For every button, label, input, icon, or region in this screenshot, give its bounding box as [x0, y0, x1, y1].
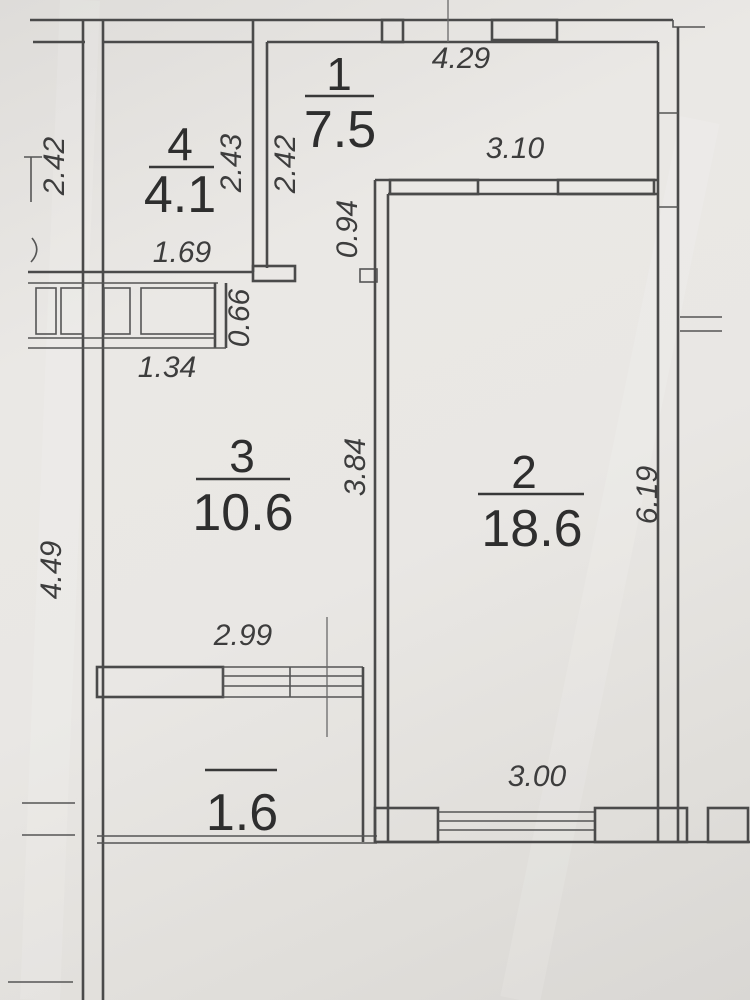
room3-label: 3 10.6 — [192, 430, 293, 542]
dim-room1-left: 2.42 — [269, 134, 302, 194]
balcony-area: 1.6 — [206, 784, 278, 842]
room1-area: 7.5 — [304, 101, 376, 159]
dim-closet-height: 0.66 — [223, 288, 256, 347]
dim-room2-bottom: 3.00 — [508, 760, 567, 793]
dim-hall-upper-right: 0.94 — [331, 200, 364, 258]
dim-room2-right: 6.19 — [631, 465, 664, 524]
dim-outer-left-upper: 2.42 — [38, 136, 71, 196]
room2-area: 18.6 — [481, 500, 582, 558]
dim-closet-width: 1.34 — [138, 351, 196, 384]
dim-room3-right: 3.84 — [339, 438, 372, 496]
dim-room3-bottom: 2.99 — [213, 619, 273, 652]
door-swing-arc — [31, 238, 37, 262]
room1-bottom-wall — [253, 266, 377, 282]
paper-crease — [520, 120, 700, 1000]
room1-left-wall — [253, 20, 267, 272]
room2-label: 2 18.6 — [478, 446, 584, 558]
top-wall — [30, 0, 705, 42]
room4-number: 4 — [167, 118, 193, 170]
dim-top-width: 4.29 — [432, 42, 491, 75]
floor-plan-svg: 1 7.5 4 4.1 3 10.6 2 18.6 1.6 2.42 2.43 … — [0, 0, 750, 1000]
floor-plan-photo: 1 7.5 4 4.1 3 10.6 2 18.6 1.6 2.42 2.43 … — [0, 0, 750, 1000]
dim-room2-top-width: 3.10 — [486, 132, 545, 165]
balcony-label: 1.6 — [205, 770, 278, 842]
room3-number: 3 — [229, 430, 255, 482]
dim-room4-bottom: 1.69 — [153, 236, 212, 269]
room3-area: 10.6 — [192, 484, 293, 542]
dim-room3-left: 4.49 — [35, 540, 68, 599]
room2-number: 2 — [511, 446, 537, 498]
room4-label: 4 4.1 — [144, 118, 216, 224]
balcony-door — [97, 667, 223, 697]
room1-number: 1 — [326, 48, 352, 100]
room2-top-wall — [375, 180, 658, 194]
room4-area: 4.1 — [144, 166, 216, 224]
dim-room4-right: 2.43 — [215, 133, 248, 193]
room1-label: 1 7.5 — [304, 48, 376, 159]
